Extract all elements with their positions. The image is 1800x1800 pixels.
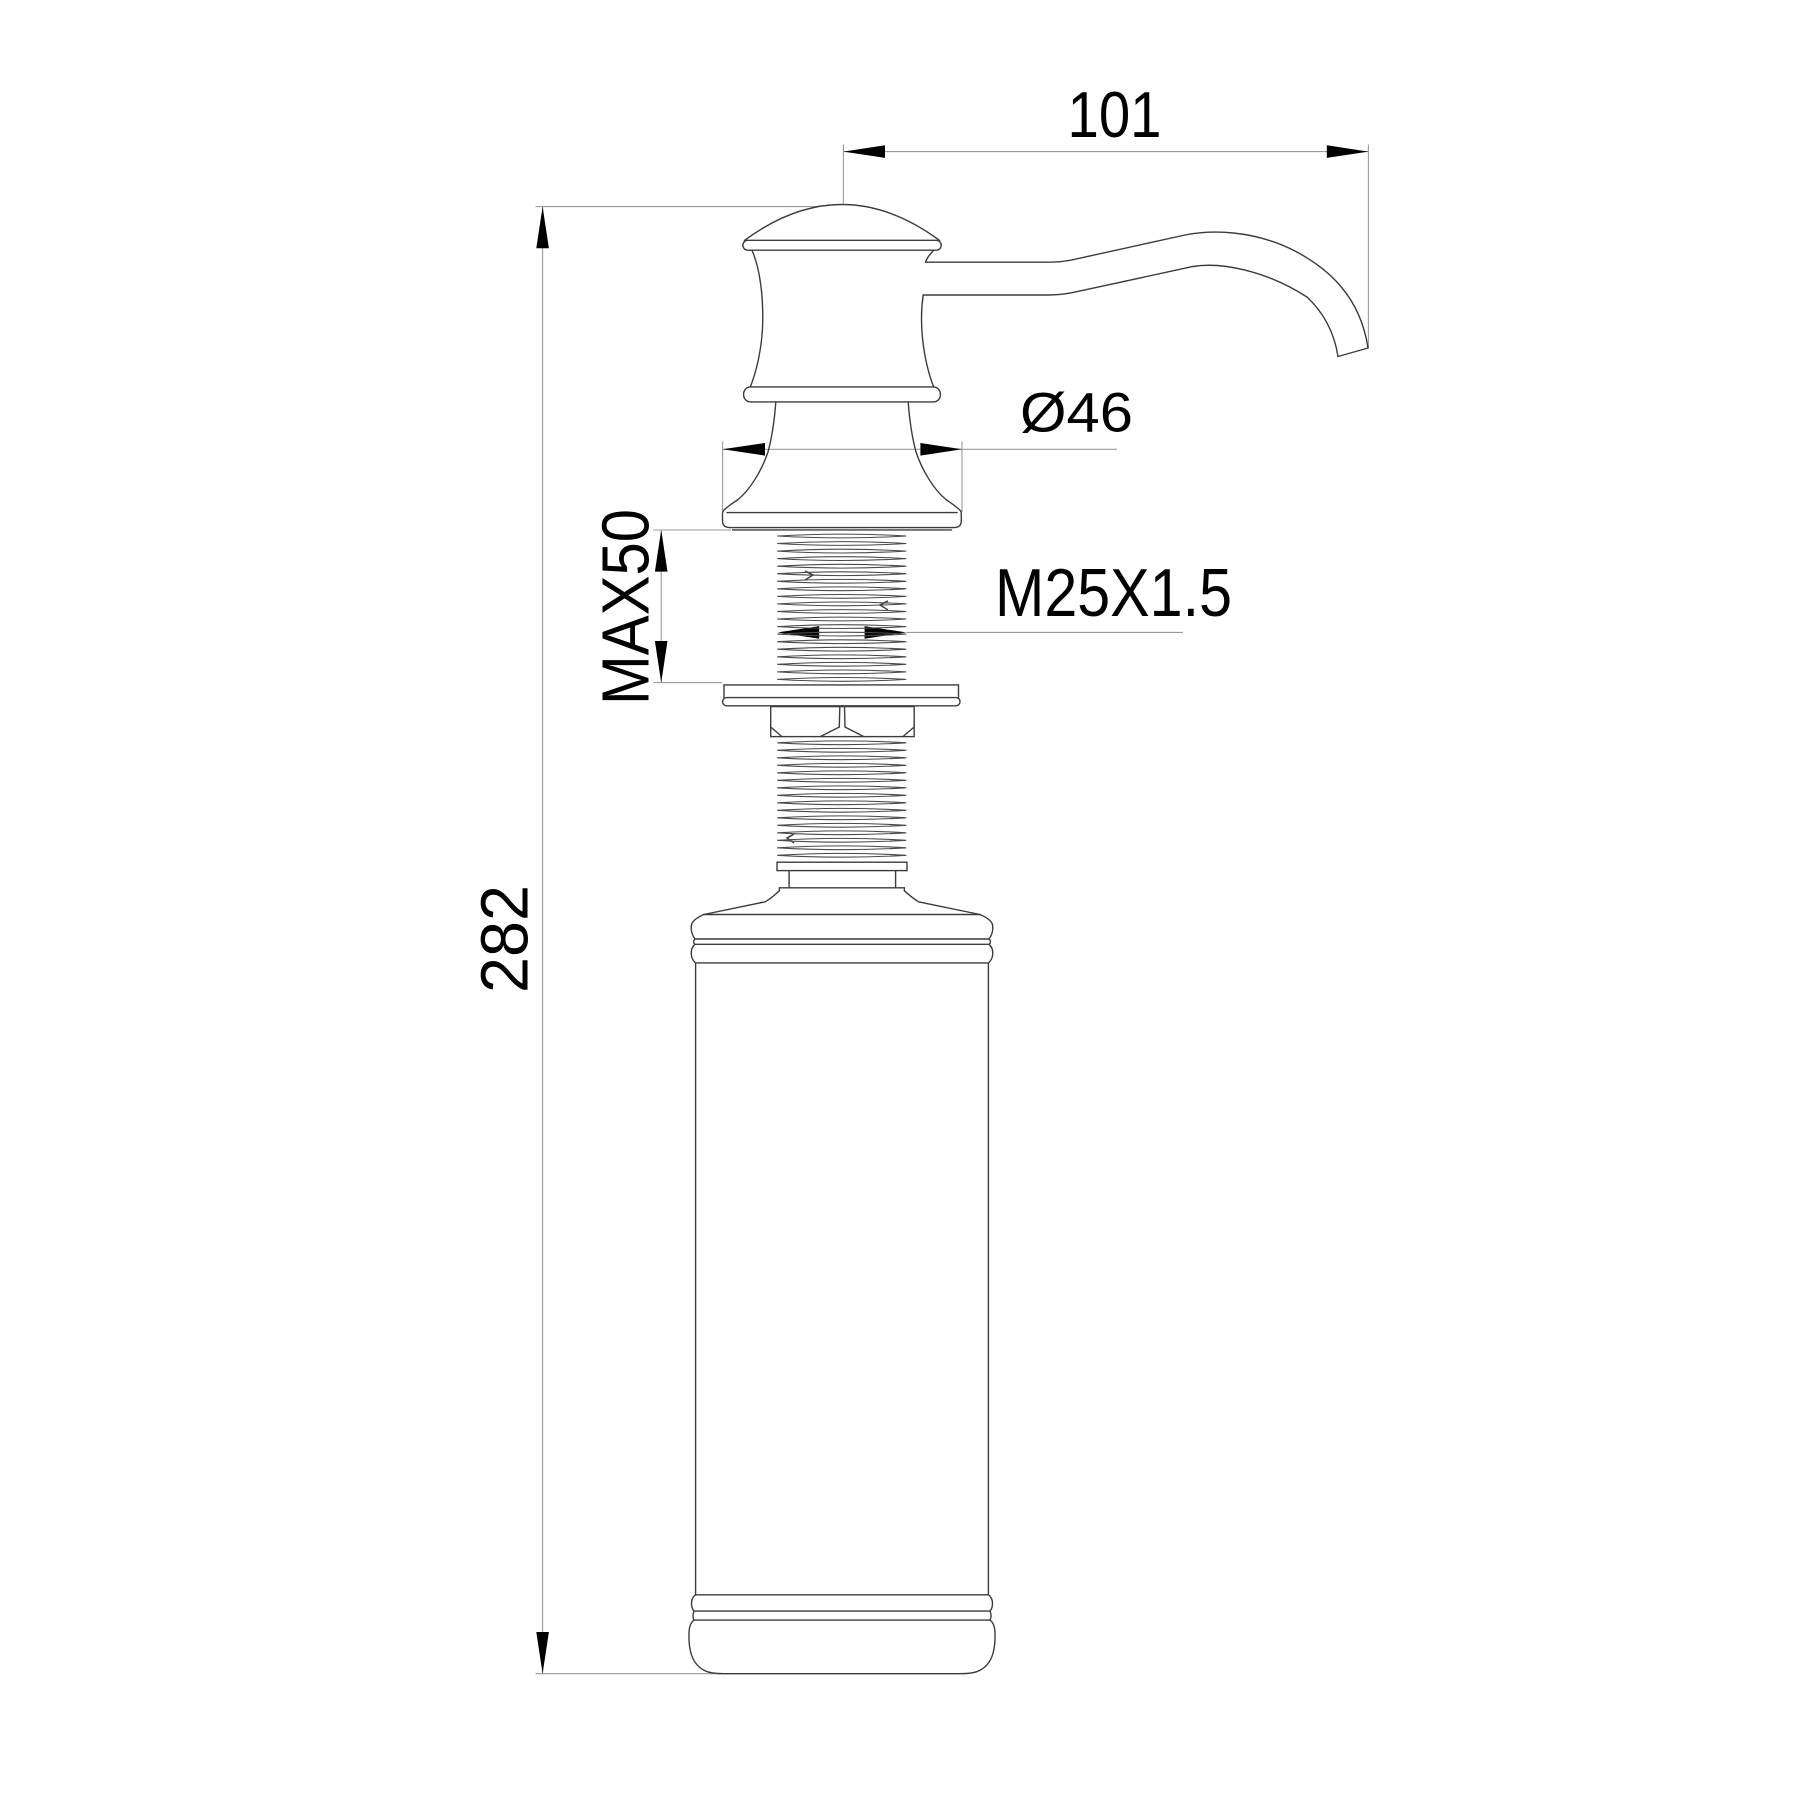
- svg-text:Ø46: Ø46: [1020, 381, 1133, 444]
- svg-text:282: 282: [468, 885, 543, 993]
- svg-text:M25X1.5: M25X1.5: [995, 555, 1232, 631]
- svg-text:MAX50: MAX50: [588, 509, 663, 705]
- svg-text:101: 101: [1068, 78, 1162, 151]
